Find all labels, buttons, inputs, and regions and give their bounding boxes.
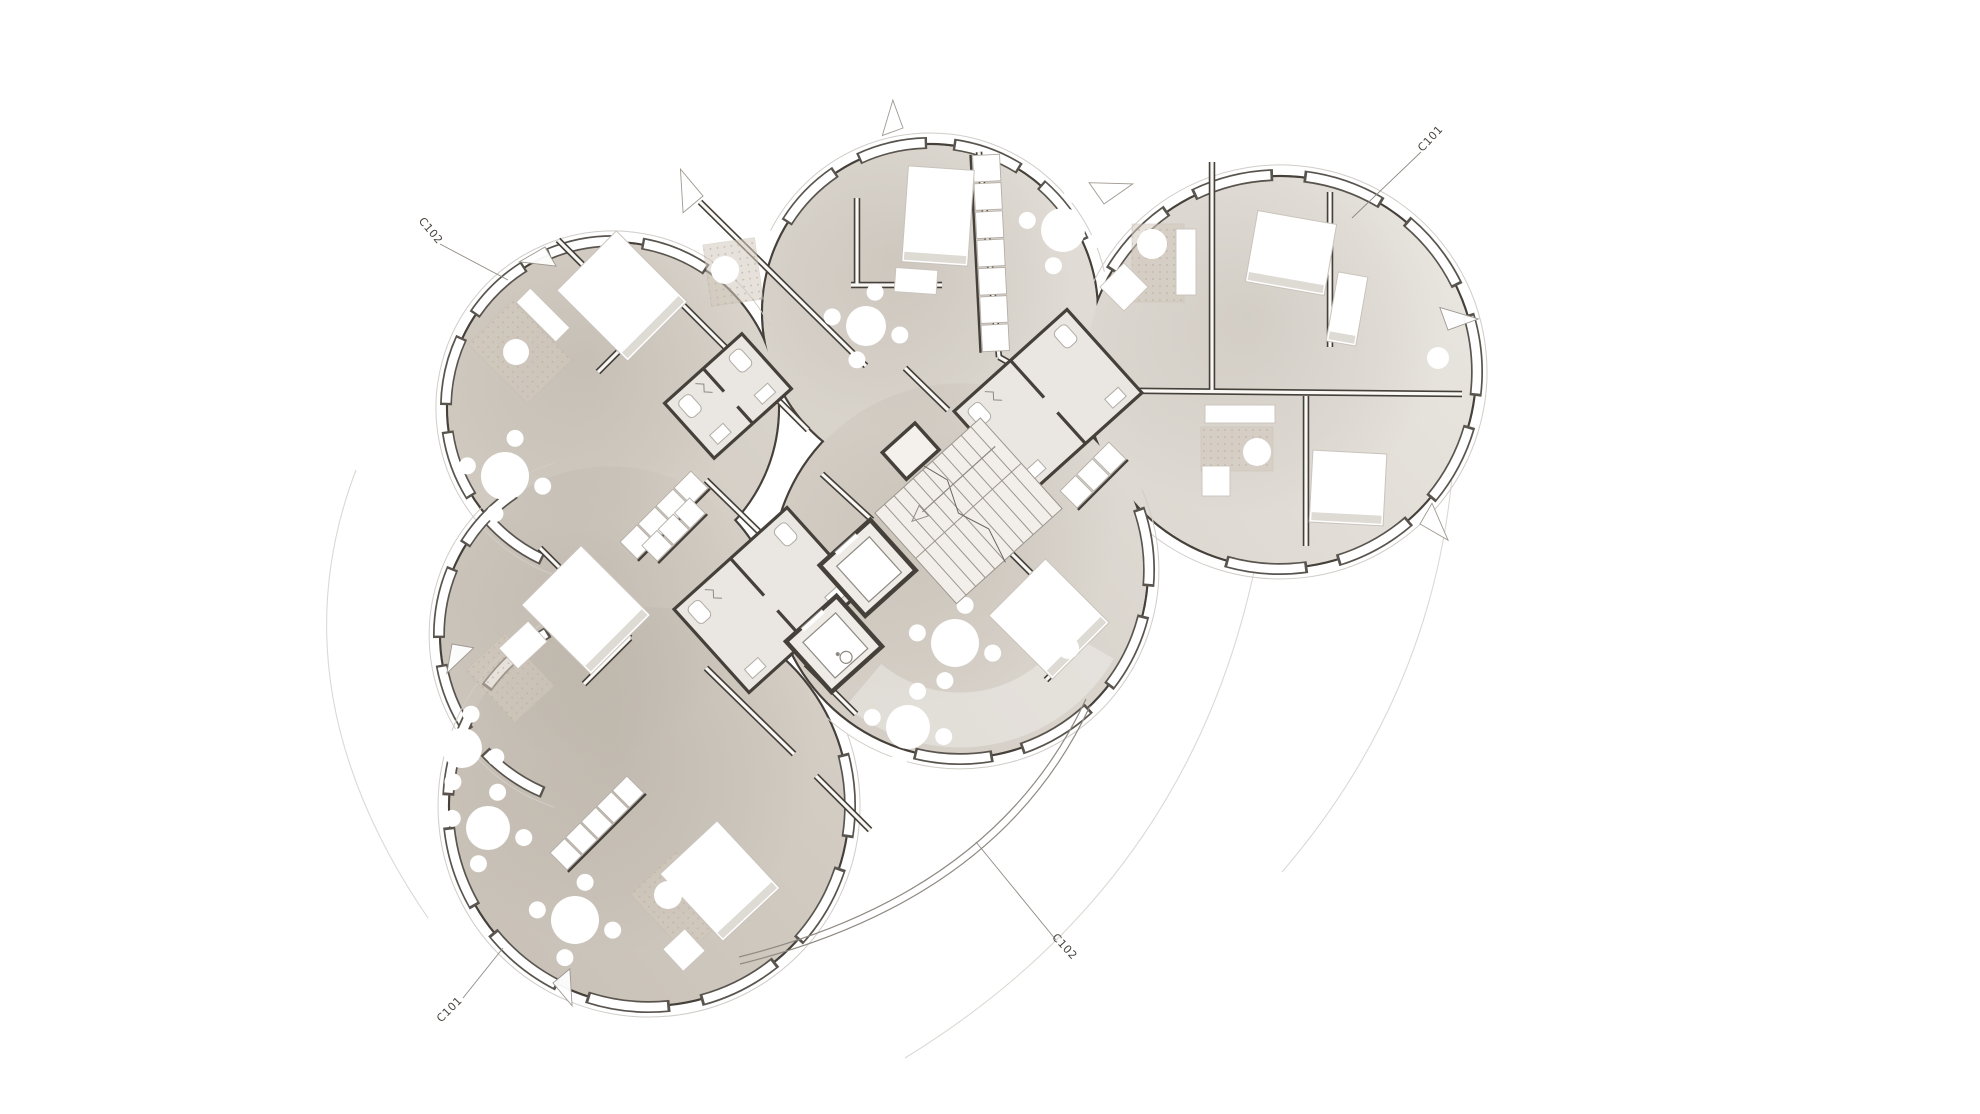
chair <box>909 683 926 700</box>
chair <box>529 901 546 918</box>
table-group <box>1243 438 1271 466</box>
chair <box>824 308 841 325</box>
chair <box>444 810 461 827</box>
floor-plan-canvas: C101C102C101C102 <box>0 0 1980 1114</box>
callout-label: C102 <box>416 215 446 247</box>
chair <box>909 624 926 641</box>
round-table <box>1057 637 1079 659</box>
chair <box>463 706 480 723</box>
chair <box>1064 186 1081 203</box>
round-table <box>1427 347 1449 369</box>
chair <box>507 430 524 447</box>
chair <box>577 874 594 891</box>
desk <box>1205 405 1275 423</box>
chair <box>556 949 573 966</box>
chair <box>848 351 865 368</box>
table-group <box>1057 637 1079 659</box>
round-table <box>466 806 510 850</box>
round-table <box>886 705 930 749</box>
round-table <box>551 896 599 944</box>
chair <box>604 922 621 939</box>
chair <box>891 327 908 344</box>
chair <box>864 709 881 726</box>
chair <box>936 672 953 689</box>
chair <box>515 829 532 846</box>
door-swing <box>1420 503 1460 540</box>
desk <box>894 268 938 295</box>
callout-label: C102 <box>1049 931 1079 962</box>
floor-plan-page: C101C102C101C102 <box>0 0 1980 1114</box>
ghost-arc <box>327 470 428 918</box>
door-swing <box>872 100 903 135</box>
chair <box>935 728 952 745</box>
round-table <box>1137 229 1167 259</box>
door-swing <box>661 169 703 213</box>
round-table <box>503 339 529 365</box>
chair <box>1090 231 1107 248</box>
chair <box>420 730 437 747</box>
chair <box>459 457 476 474</box>
table-group <box>1137 229 1167 259</box>
chair <box>534 478 551 495</box>
callout-label: C101 <box>1415 123 1445 154</box>
chair <box>867 284 884 301</box>
table-group <box>1427 347 1449 369</box>
round-table <box>1243 438 1271 466</box>
bed <box>1245 211 1336 296</box>
wardrobe-unit <box>980 296 1008 324</box>
wardrobe-unit <box>978 267 1006 295</box>
chair <box>486 505 503 522</box>
round-table <box>1041 208 1085 252</box>
bed <box>902 166 975 266</box>
desk <box>1202 466 1230 496</box>
chair <box>489 784 506 801</box>
table-group <box>654 881 682 909</box>
chair <box>984 645 1001 662</box>
chair <box>1045 257 1062 274</box>
desk <box>1176 229 1196 295</box>
round-table <box>931 619 979 667</box>
round-table <box>654 881 682 909</box>
callout-leader-line <box>440 244 508 280</box>
door-swing <box>1089 163 1133 204</box>
table-group <box>711 256 739 284</box>
wardrobe-unit <box>973 154 1001 182</box>
callout-leader-line <box>463 948 503 998</box>
wardrobe-unit <box>981 324 1009 352</box>
callout-leader-line <box>976 842 1056 940</box>
callout-label: C101 <box>434 994 465 1025</box>
round-table <box>846 306 886 346</box>
chair <box>890 754 907 771</box>
chair <box>470 855 487 872</box>
window-glass <box>917 754 990 759</box>
wardrobe-unit <box>975 211 1003 239</box>
chair <box>444 773 461 790</box>
round-table <box>442 728 482 768</box>
wardrobe-unit <box>977 239 1005 267</box>
wardrobe-unit <box>974 183 1002 211</box>
chair <box>487 749 504 766</box>
bed <box>1309 450 1387 526</box>
round-table <box>711 256 739 284</box>
round-table <box>481 452 529 500</box>
table-group <box>503 339 529 365</box>
chair <box>1019 212 1036 229</box>
